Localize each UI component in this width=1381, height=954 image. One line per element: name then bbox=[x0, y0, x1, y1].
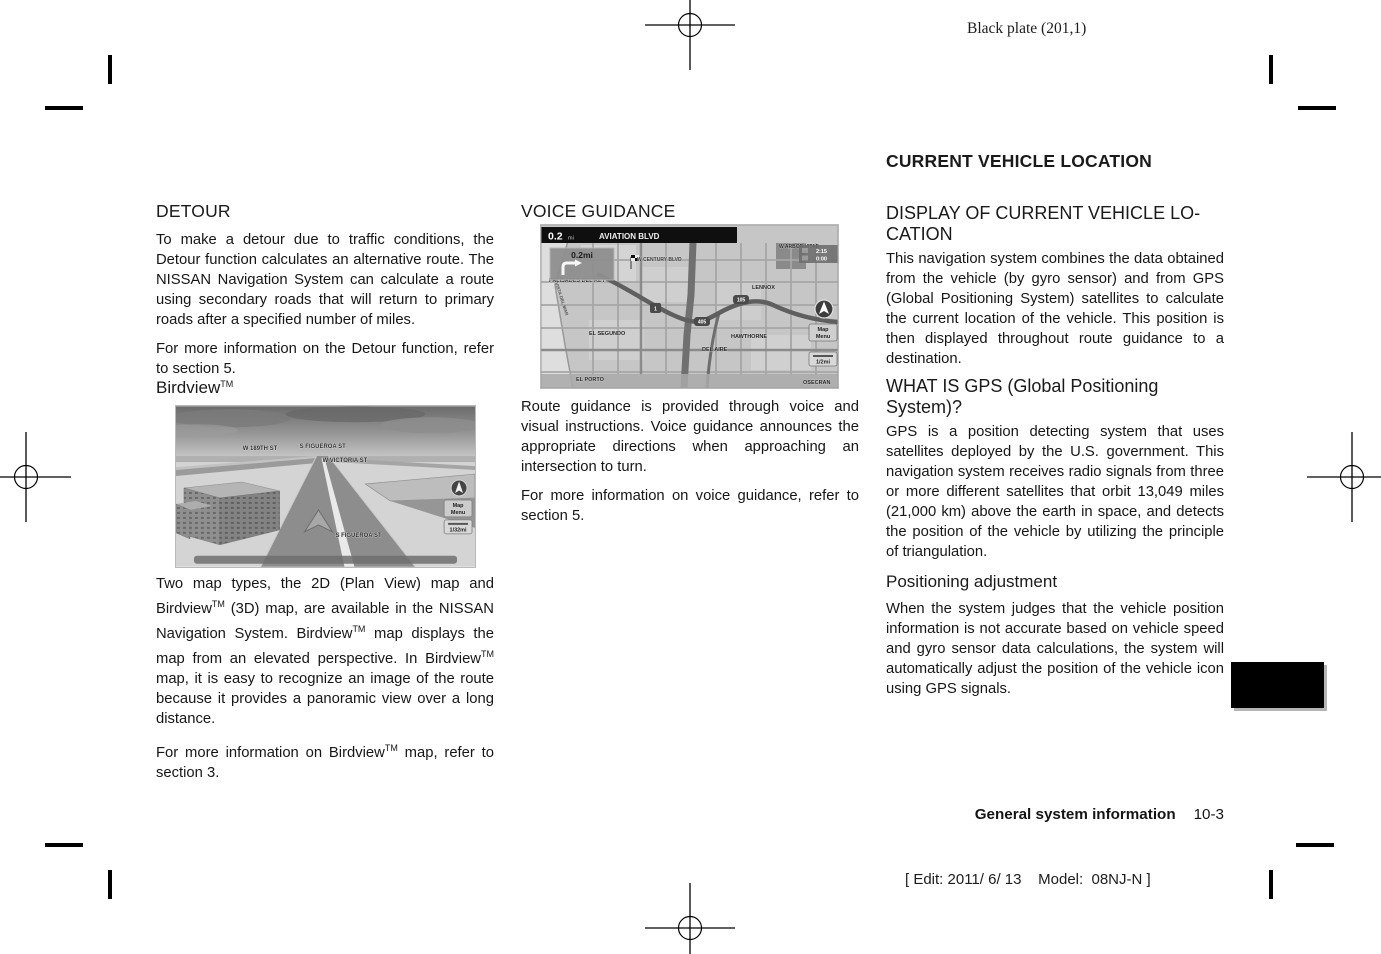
next-street-name: AVIATION BLVD bbox=[599, 232, 660, 241]
distance-value: 0.2 bbox=[548, 231, 563, 243]
birdview-map-image: W 189TH ST S FIGUEROA ST W VICTORIA ST S… bbox=[176, 406, 475, 567]
crop-mark-top-right-vertical bbox=[1269, 55, 1273, 84]
crop-mark-bottom-left-horizontal bbox=[45, 843, 83, 847]
turn-info-box: 0.2mi bbox=[550, 248, 614, 280]
edit-note: [ Edit: 2011/ 6/ 13 Model: 08NJ-N ] bbox=[905, 871, 1151, 888]
tm-mark: TM bbox=[481, 649, 494, 659]
detour-paragraph-2: For more information on the Detour funct… bbox=[156, 339, 494, 379]
footer-page-number: 10-3 bbox=[1194, 806, 1224, 823]
display-heading-line2: CATION bbox=[886, 224, 1224, 245]
crop-mark-top-right-horizontal bbox=[1298, 106, 1336, 110]
scale-label: 1/2mi bbox=[816, 360, 831, 366]
scale-label: 1/32mi bbox=[450, 527, 468, 533]
area-label: DEL AIRE bbox=[702, 347, 728, 353]
map-menu-label-2: Menu bbox=[451, 510, 465, 516]
street-label: W VICTORIA ST bbox=[323, 458, 368, 464]
display-heading: DISPLAY OF CURRENT VEHICLE LO- CATION bbox=[886, 203, 1224, 245]
map-menu-button: Map Menu bbox=[809, 324, 837, 341]
section-thumb-tab bbox=[1231, 662, 1324, 708]
shield-label: 405 bbox=[698, 320, 707, 326]
voice-guidance-map-image: 1 405 105 PALISADES DEL REY W CENTURY BL… bbox=[541, 225, 838, 388]
crop-mark-bottom-right-horizontal bbox=[1296, 843, 1334, 847]
display-paragraph: This navigation system combines the data… bbox=[886, 249, 1224, 369]
distance-unit: mi bbox=[568, 236, 574, 242]
detour-paragraph-1: To make a detour due to traffic conditio… bbox=[156, 230, 494, 330]
area-label: HAWTHORNE bbox=[731, 334, 767, 340]
birdview-map-figure: W 189TH ST S FIGUEROA ST W VICTORIA ST S… bbox=[176, 406, 475, 567]
crop-mark-bottom-left-vertical bbox=[108, 870, 112, 899]
shield-label: 105 bbox=[737, 298, 746, 304]
street-label: W 189TH ST bbox=[243, 446, 278, 452]
map-menu-button: Map Menu bbox=[444, 500, 472, 517]
gps-paragraph: GPS is a position detecting system that … bbox=[886, 422, 1224, 562]
street-label: W CENTURY BLVD bbox=[637, 257, 682, 263]
current-vehicle-location-heading: CURRENT VEHICLE LOCATION bbox=[886, 151, 1152, 172]
gps-heading-line2: System)? bbox=[886, 397, 1224, 418]
birdview-heading: BirdviewTM bbox=[156, 378, 233, 398]
footer: General system information 10-3 bbox=[886, 806, 1224, 823]
voice-guidance-map-figure: 1 405 105 PALISADES DEL REY W CENTURY BL… bbox=[541, 225, 838, 388]
voice-paragraph-1: Route guidance is provided through voice… bbox=[521, 397, 859, 477]
tm-mark: TM bbox=[212, 599, 225, 609]
registration-mark-top bbox=[644, 0, 736, 71]
voice-guidance-text-block: Route guidance is provided through voice… bbox=[521, 397, 859, 526]
manual-page: Black plate (201,1) DETOUR To make a det… bbox=[0, 0, 1381, 954]
street-label: S FIGUEROA ST bbox=[300, 444, 347, 450]
crop-mark-bottom-right-vertical bbox=[1269, 870, 1273, 899]
registration-mark-bottom bbox=[644, 882, 736, 954]
guidance-header-bar: 0.2 mi AVIATION BLVD bbox=[541, 227, 737, 243]
birdview-paragraph-2: For more information on BirdviewTM map, … bbox=[156, 738, 494, 783]
scale-button: 1/2mi bbox=[809, 352, 837, 366]
voice-guidance-heading: VOICE GUIDANCE bbox=[521, 201, 676, 222]
gps-heading-line1: WHAT IS GPS (Global Positioning bbox=[886, 376, 1224, 397]
detour-heading: DETOUR bbox=[156, 201, 494, 222]
map-menu-label-1: Map bbox=[453, 503, 465, 509]
map-menu-label-1: Map bbox=[818, 327, 830, 333]
registration-mark-right bbox=[1306, 431, 1381, 523]
trip-info-box: 2:15 0:00 bbox=[799, 245, 838, 263]
compass-icon bbox=[815, 300, 833, 318]
crop-mark-top-left-vertical bbox=[108, 55, 112, 84]
registration-mark-left bbox=[0, 431, 72, 523]
area-label: EL SEGUNDO bbox=[589, 331, 626, 337]
positioning-heading: Positioning adjustment bbox=[886, 572, 1057, 592]
footer-section-title: General system information bbox=[975, 806, 1176, 823]
elapsed-value: 0:00 bbox=[816, 257, 827, 263]
scale-button: 1/32mi bbox=[444, 520, 472, 534]
positioning-paragraph: When the system judges that the vehicle … bbox=[886, 599, 1224, 699]
shield-label: 1 bbox=[654, 307, 657, 313]
tm-mark: TM bbox=[385, 743, 398, 753]
area-label: OSECRAN bbox=[803, 380, 831, 386]
compass-icon bbox=[451, 480, 467, 496]
tm-mark: TM bbox=[352, 624, 365, 634]
birdview-heading-text: Birdview bbox=[156, 378, 220, 397]
birdview-heading-tm: TM bbox=[220, 379, 233, 389]
street-label: S FIGUEROA ST bbox=[335, 533, 382, 539]
crop-mark-top-left-horizontal bbox=[45, 106, 83, 110]
birdview-paragraph-1: Two map types, the 2D (Plan View) map an… bbox=[156, 574, 494, 729]
text-segment: For more information on Birdview bbox=[156, 745, 385, 761]
eta-value: 2:15 bbox=[816, 249, 827, 255]
turn-distance: 0.2mi bbox=[571, 250, 593, 260]
display-heading-line1: DISPLAY OF CURRENT VEHICLE LO- bbox=[886, 203, 1224, 224]
area-label: LENNOX bbox=[752, 285, 775, 291]
gps-heading: WHAT IS GPS (Global Positioning System)? bbox=[886, 376, 1224, 418]
map-menu-label-2: Menu bbox=[816, 334, 830, 340]
voice-paragraph-2: For more information on voice guidance, … bbox=[521, 486, 859, 526]
area-label: EL PORTO bbox=[576, 377, 605, 383]
text-segment: map, it is easy to recognize an image of… bbox=[156, 671, 494, 727]
plate-note: Black plate (201,1) bbox=[967, 20, 1086, 38]
left-column: DETOUR To make a detour due to traffic c… bbox=[156, 201, 494, 379]
birdview-text-block: Two map types, the 2D (Plan View) map an… bbox=[156, 574, 494, 783]
